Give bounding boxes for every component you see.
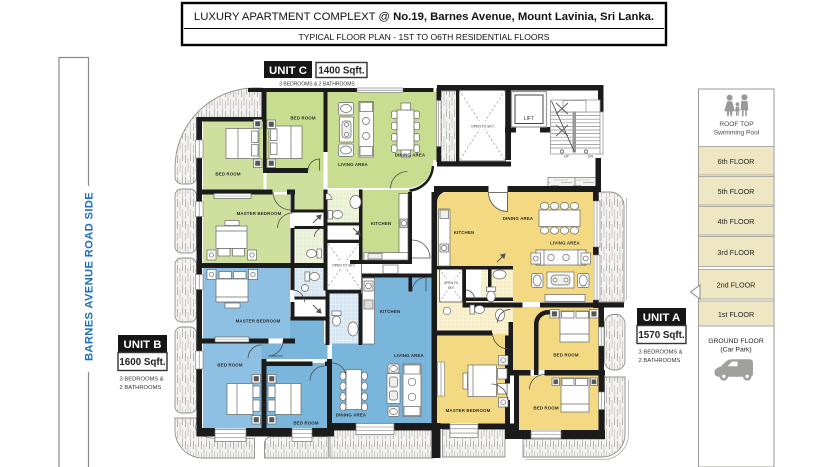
svg-text:3 BEDROOMS &: 3 BEDROOMS & (639, 350, 683, 356)
svg-text:4th FLOOR: 4th FLOOR (718, 217, 755, 226)
svg-text:OPEN TO SKY: OPEN TO SKY (471, 124, 495, 128)
svg-text:3 BEDROOMS &: 3 BEDROOMS & (120, 377, 164, 383)
svg-text:MASTER BEDROOM: MASTER BEDROOM (236, 319, 281, 324)
svg-text:(Car Park): (Car Park) (720, 347, 751, 354)
svg-text:UNIT A: UNIT A (643, 312, 681, 324)
svg-text:5th FLOOR: 5th FLOOR (718, 187, 755, 196)
svg-text:KITCHEN: KITCHEN (371, 221, 392, 226)
svg-text:BED ROOM: BED ROOM (293, 421, 319, 426)
svg-text:BED ROOM: BED ROOM (553, 353, 579, 358)
svg-text:LIVING AREA: LIVING AREA (550, 241, 580, 246)
svg-text:KITCHEN: KITCHEN (454, 230, 475, 235)
svg-text:3 BEDROOMS & 2 BATHROOMS: 3 BEDROOMS & 2 BATHROOMS (279, 82, 355, 88)
svg-text:MASTER BEDROOM: MASTER BEDROOM (237, 211, 282, 216)
svg-text:UP: UP (564, 155, 569, 159)
svg-text:KITCHEN: KITCHEN (380, 309, 401, 314)
svg-text:SKY: SKY (448, 286, 455, 290)
svg-text:BED ROOM: BED ROOM (290, 116, 316, 121)
svg-text:BED ROOM: BED ROOM (215, 172, 241, 177)
svg-text:1570 Sqft.: 1570 Sqft. (638, 330, 685, 341)
svg-text:LIVING AREA: LIVING AREA (394, 353, 424, 358)
svg-text:LIFT: LIFT (524, 116, 534, 122)
svg-text:GROUND FLOOR: GROUND FLOOR (708, 338, 764, 345)
svg-text:Swimming Pool: Swimming Pool (714, 130, 760, 137)
svg-text:BED ROOM: BED ROOM (217, 363, 243, 368)
svg-text:6th FLOOR: 6th FLOOR (718, 157, 755, 166)
svg-text:LIVING AREA: LIVING AREA (338, 162, 368, 167)
svg-text:UNIT B: UNIT B (124, 339, 162, 351)
svg-text:1st FLOOR: 1st FLOOR (718, 310, 754, 319)
svg-text:2 BATHROOMS: 2 BATHROOMS (120, 385, 162, 391)
svg-text:MASTER BEDROOM: MASTER BEDROOM (446, 408, 491, 413)
svg-text:2nd FLOOR: 2nd FLOOR (717, 281, 756, 290)
svg-text:DINING AREA: DINING AREA (336, 413, 367, 418)
svg-text:OPEN TO: OPEN TO (444, 281, 459, 285)
svg-text:UNIT C: UNIT C (269, 65, 307, 77)
svg-text:1400 Sqft.: 1400 Sqft. (318, 66, 365, 77)
svg-text:BARNES AVENUE ROAD SIDE: BARNES AVENUE ROAD SIDE (84, 192, 96, 361)
svg-text:TYPICAL FLOOR PLAN - 1ST TO O6: TYPICAL FLOOR PLAN - 1ST TO O6TH RESIDEN… (298, 32, 549, 42)
svg-text:DINING AREA: DINING AREA (503, 216, 534, 221)
svg-text:DN: DN (588, 155, 593, 159)
svg-text:2 BATHROOMS: 2 BATHROOMS (639, 358, 681, 364)
svg-text:1600 Sqft.: 1600 Sqft. (119, 357, 166, 368)
svg-text:LUXURY APARTMENT COMPLEXT @ No: LUXURY APARTMENT COMPLEXT @ No.19, Barne… (194, 11, 654, 23)
svg-text:3rd FLOOR: 3rd FLOOR (717, 248, 754, 257)
svg-text:ROOF TOP: ROOF TOP (719, 121, 754, 128)
svg-text:BED ROOM: BED ROOM (533, 406, 559, 411)
svg-text:DINING AREA: DINING AREA (395, 153, 426, 158)
